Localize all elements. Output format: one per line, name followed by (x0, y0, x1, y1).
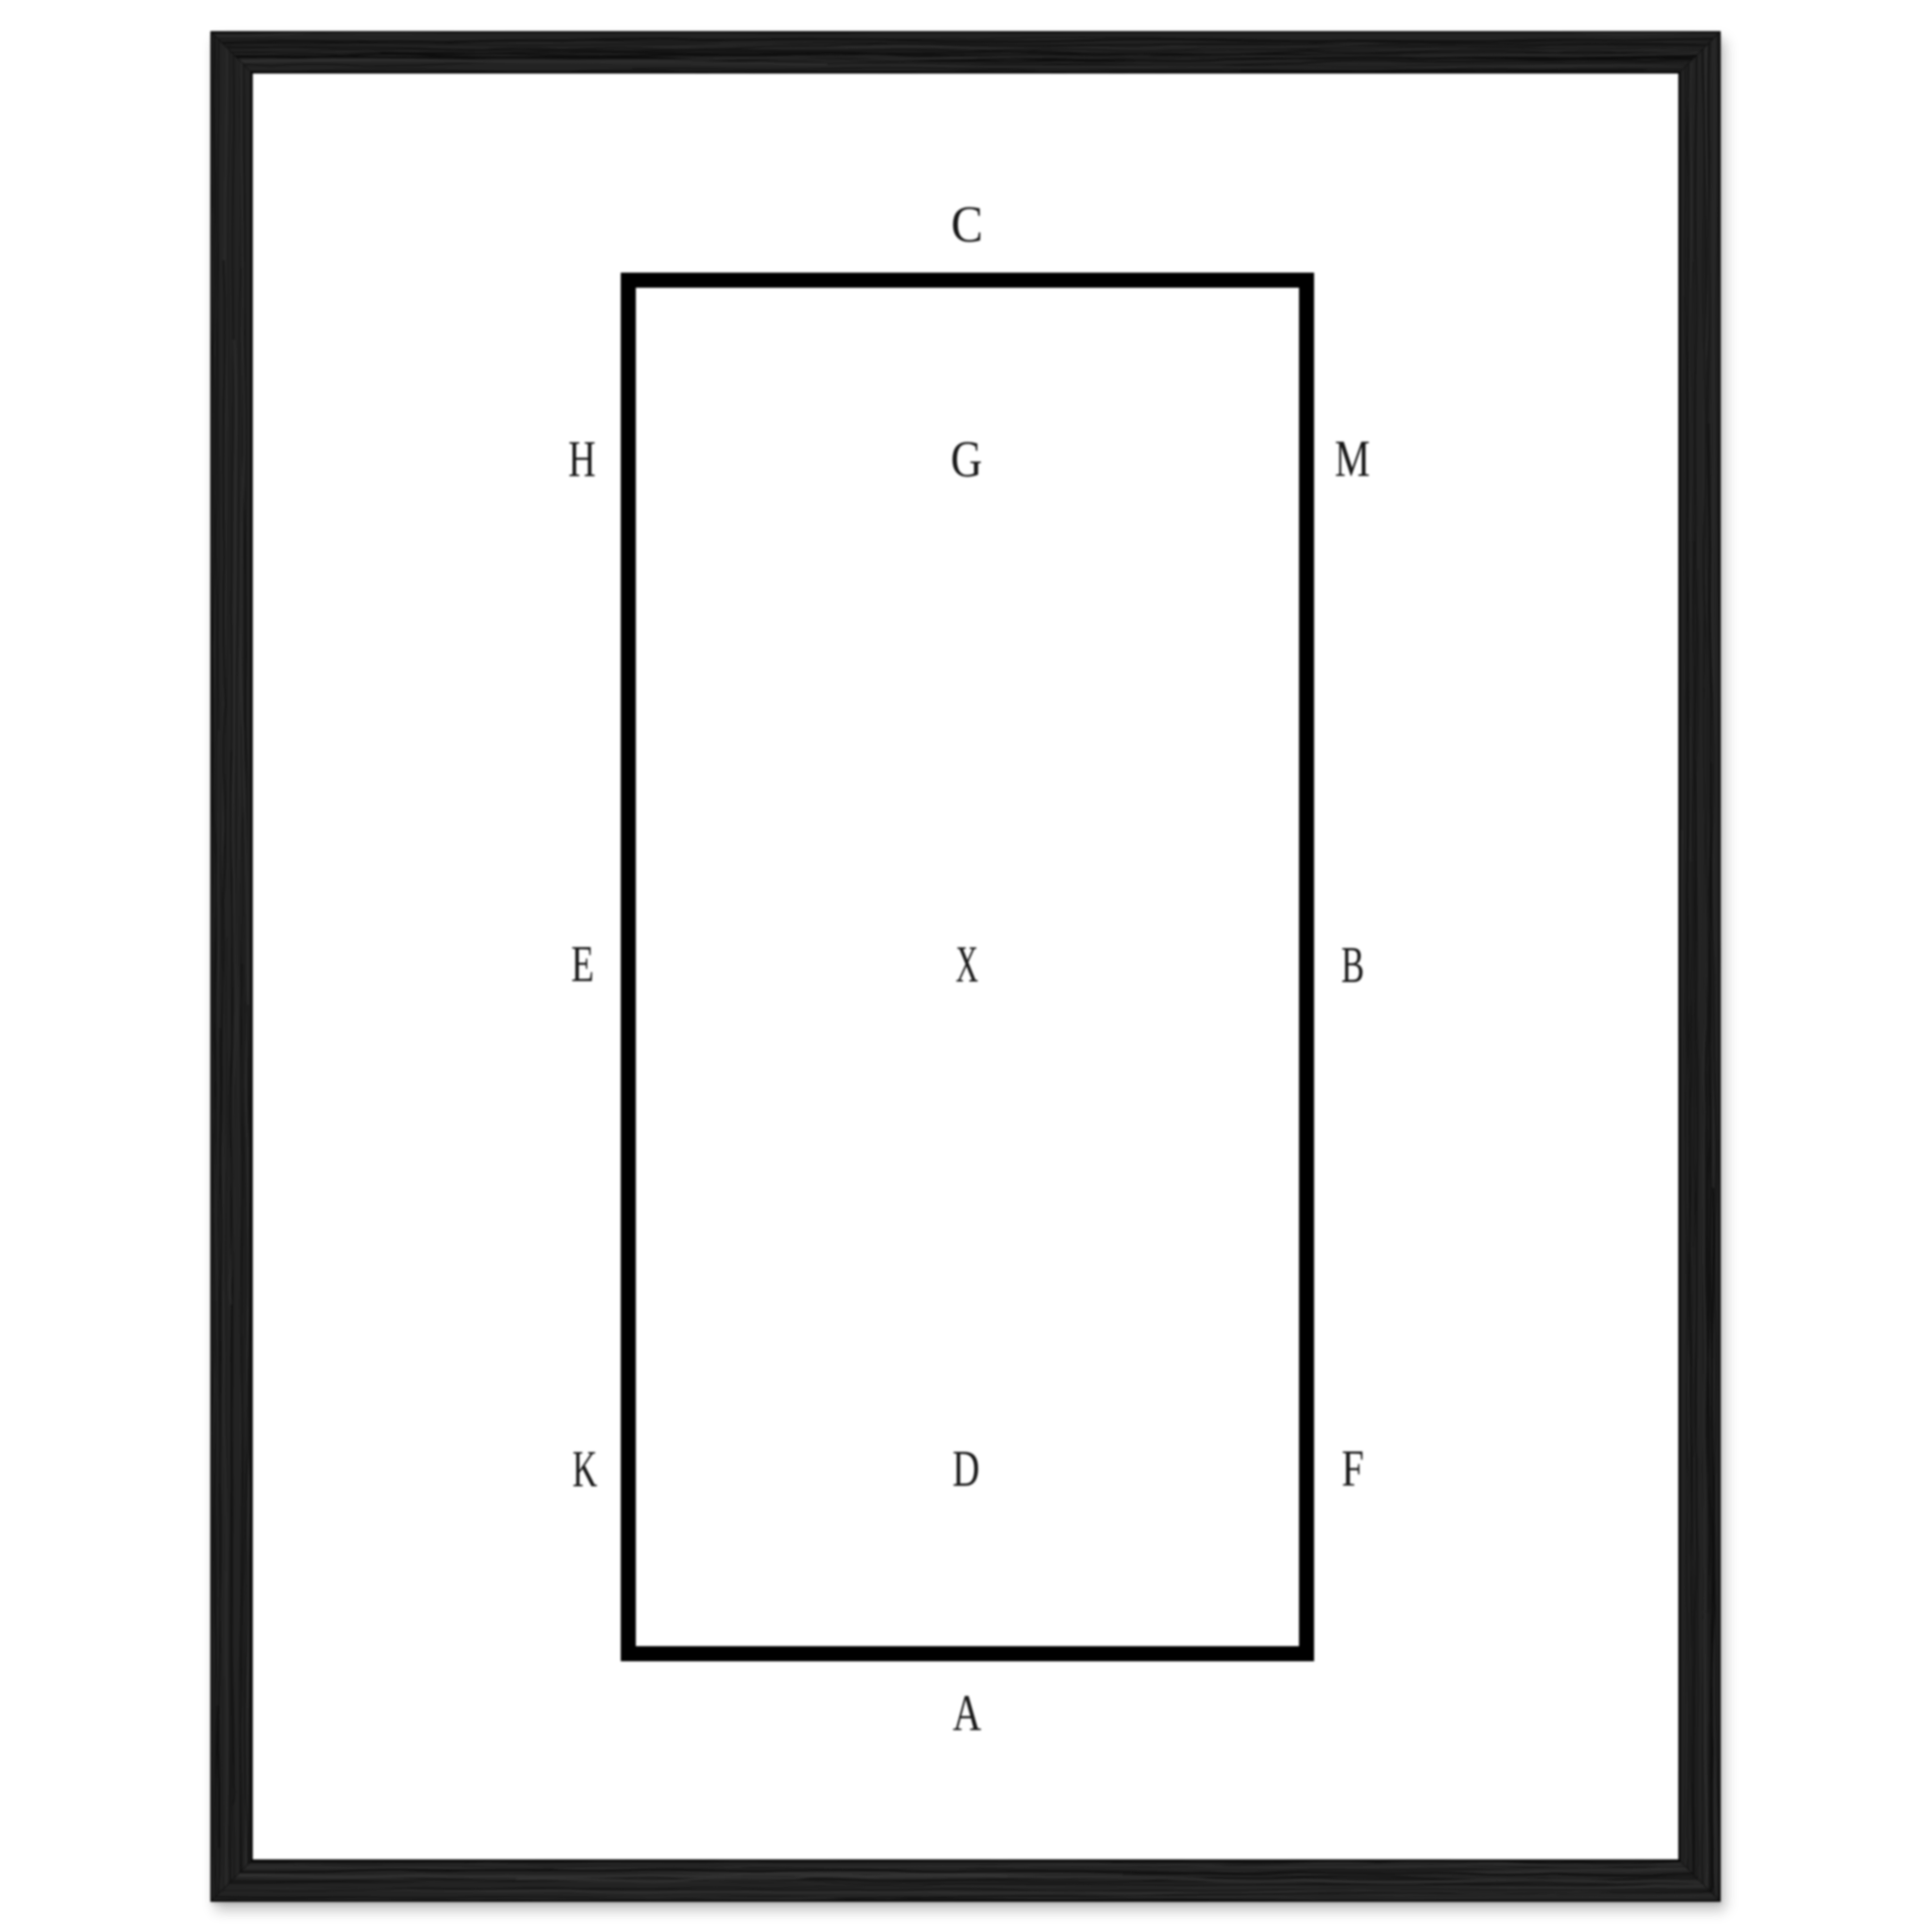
svg-text:F: F (1341, 1440, 1364, 1497)
svg-text:G: G (951, 430, 983, 487)
svg-text:C: C (951, 196, 983, 253)
svg-text:B: B (1341, 938, 1364, 994)
svg-text:K: K (573, 1441, 598, 1498)
svg-text:E: E (571, 936, 593, 993)
svg-text:M: M (1335, 430, 1370, 488)
svg-text:D: D (953, 1441, 980, 1498)
svg-text:X: X (956, 936, 978, 992)
svg-text:A: A (953, 1685, 981, 1742)
svg-text:H: H (568, 431, 595, 488)
